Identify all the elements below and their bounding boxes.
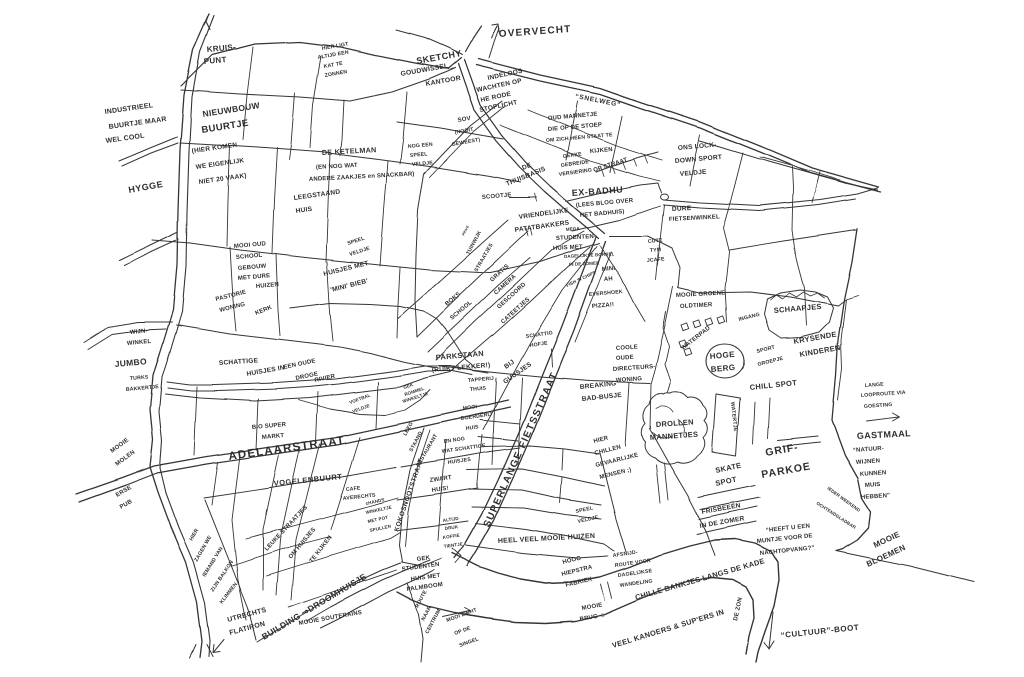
svg-text:MUIS: MUIS xyxy=(865,482,881,489)
svg-text:MINI: MINI xyxy=(602,266,616,273)
svg-text:TYM: TYM xyxy=(650,247,662,254)
svg-text:AH: AH xyxy=(604,276,614,283)
svg-text:OUDE: OUDE xyxy=(616,355,634,362)
svg-text:DURE: DURE xyxy=(672,205,692,213)
